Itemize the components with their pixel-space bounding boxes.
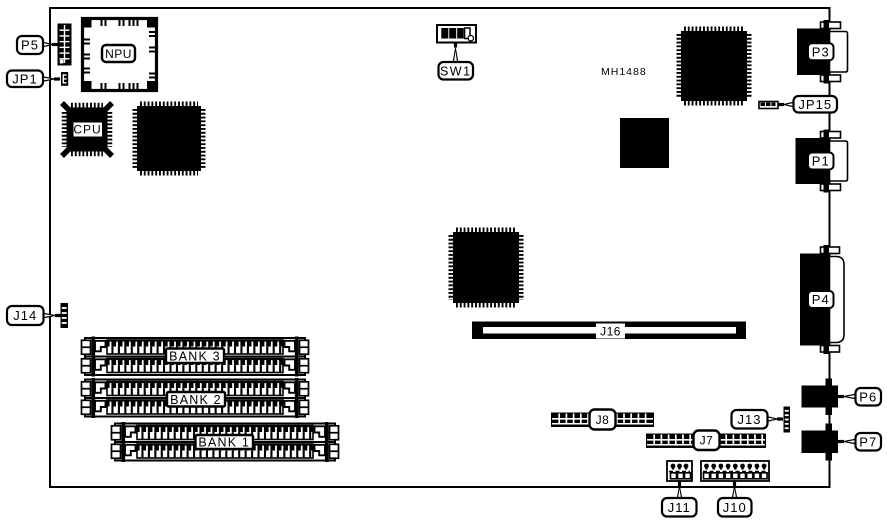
svg-text:J7: J7 (700, 434, 714, 448)
svg-text:J13: J13 (738, 412, 762, 427)
svg-text:SW1: SW1 (440, 64, 472, 78)
svg-text:P4: P4 (812, 292, 830, 307)
svg-text:BANK 3: BANK 3 (169, 349, 221, 363)
svg-text:JP1: JP1 (12, 71, 37, 86)
svg-text:J16: J16 (600, 325, 621, 339)
svg-text:JP15: JP15 (798, 97, 832, 112)
svg-text:P5: P5 (21, 38, 39, 53)
svg-text:BANK 1: BANK 1 (198, 436, 250, 450)
svg-text:J11: J11 (668, 500, 691, 515)
svg-text:J10: J10 (723, 500, 747, 515)
svg-text:P1: P1 (812, 154, 830, 169)
svg-text:P6: P6 (859, 389, 877, 404)
svg-text:J14: J14 (13, 308, 37, 323)
svg-text:CPU: CPU (73, 123, 101, 137)
svg-text:P7: P7 (859, 434, 877, 449)
svg-text:MH1488: MH1488 (601, 66, 647, 78)
svg-text:J8: J8 (596, 413, 610, 427)
svg-text:P3: P3 (812, 44, 830, 59)
svg-text:NPU: NPU (105, 47, 132, 61)
svg-text:BANK 2: BANK 2 (170, 393, 222, 407)
